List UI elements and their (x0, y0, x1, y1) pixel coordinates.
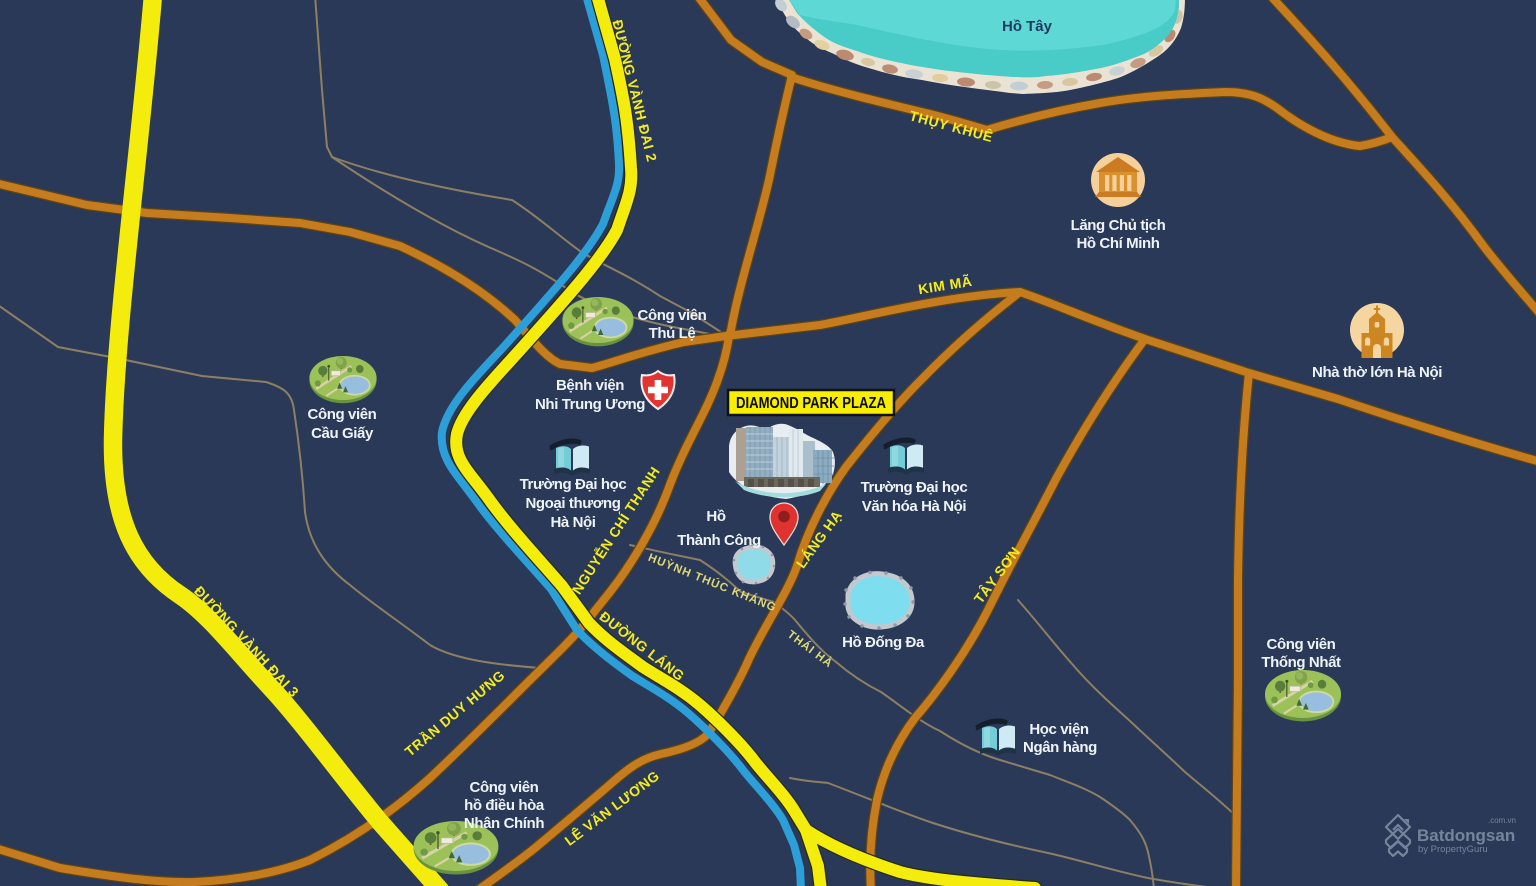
svg-text:Batdongsan: Batdongsan (1417, 826, 1515, 845)
svg-text:Trường Đại học: Trường Đại học (520, 476, 627, 493)
svg-text:Công viên: Công viên (470, 779, 539, 796)
svg-text:Hồ: Hồ (706, 508, 725, 525)
svg-text:Hà Nội: Hà Nội (550, 514, 595, 531)
svg-text:Bệnh viện: Bệnh viện (556, 377, 624, 394)
svg-text:Công viên: Công viên (638, 307, 707, 324)
svg-text:Hồ Tây: Hồ Tây (1002, 18, 1053, 35)
svg-text:Ngân hàng: Ngân hàng (1023, 739, 1097, 756)
svg-text:Hồ Đống Đa: Hồ Đống Đa (842, 634, 925, 651)
svg-text:Lăng Chủ tịch: Lăng Chủ tịch (1071, 217, 1166, 234)
svg-text:.com.vn: .com.vn (1488, 816, 1516, 825)
svg-text:Thủ Lệ: Thủ Lệ (649, 325, 696, 342)
svg-text:DIAMOND PARK PLAZA: DIAMOND PARK PLAZA (736, 395, 886, 412)
svg-text:Công viên: Công viên (308, 406, 377, 423)
svg-text:Trường Đại học: Trường Đại học (861, 479, 968, 496)
svg-text:Văn hóa Hà Nội: Văn hóa Hà Nội (862, 498, 967, 515)
svg-text:Nhà thờ lớn Hà Nội: Nhà thờ lớn Hà Nội (1312, 364, 1442, 381)
svg-text:Nhi Trung Ương: Nhi Trung Ương (535, 396, 645, 413)
svg-text:Công viên: Công viên (1267, 636, 1336, 653)
svg-text:by PropertyGuru: by PropertyGuru (1418, 844, 1488, 855)
svg-text:Hồ Chí Minh: Hồ Chí Minh (1076, 235, 1159, 252)
svg-text:Cầu Giấy: Cầu Giấy (311, 425, 374, 442)
svg-text:Thành Công: Thành Công (677, 532, 761, 549)
svg-text:hồ điều hòa: hồ điều hòa (464, 797, 545, 814)
svg-text:Nhân Chính: Nhân Chính (464, 815, 544, 832)
svg-text:Ngoại thương: Ngoại thương (525, 495, 620, 512)
svg-text:Thống Nhất: Thống Nhất (1261, 654, 1341, 671)
svg-text:Học viện: Học viện (1029, 721, 1089, 738)
